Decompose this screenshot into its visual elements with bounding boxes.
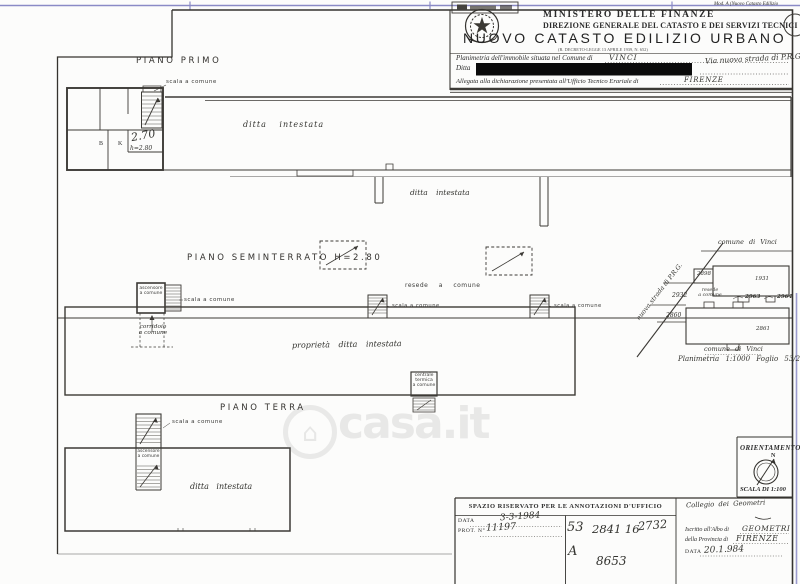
seminterrato-ascensore-label: ascensore a comune — [138, 287, 164, 297]
ufficio-erariale-label: Allegata alla dichiarazione presentata a… — [456, 78, 638, 85]
parcel-2860: 2860 — [666, 313, 681, 319]
height-note-small: h=2.80 — [130, 146, 152, 152]
map-comune-bottom: comune di Vinci — [704, 346, 763, 353]
ufficio-erariale-value: FIRENZE — [684, 77, 724, 85]
room-k-label: K — [118, 141, 122, 147]
parcel-2932: 2932 — [672, 293, 687, 299]
terra-scala-label: scala a comune — [172, 419, 223, 425]
location-map-drawing — [637, 243, 792, 357]
office-code-1: 53 — [567, 521, 584, 535]
room-b-label: B — [99, 141, 103, 147]
albo-label: Iscritto all'Albo di — [685, 527, 729, 533]
albo-value: GEOMETRI — [742, 525, 790, 533]
ministry-name: MINISTERO DELLE FINANZE — [543, 10, 715, 20]
seminterrato-scala-label-2: scala a comune — [392, 304, 440, 310]
scanned-cadastral-sheet: ⌂ casa.it Mod. A (Nuovo Catasto Edilizio… — [0, 0, 800, 584]
albo-data-label: DATA — [685, 550, 702, 556]
parcel-2861: 2861 — [756, 327, 770, 333]
comune-field-value: VINCI — [609, 54, 638, 62]
seminterrato-scala-label-3: scala a comune — [554, 304, 602, 310]
prot-field-label: PROT. N° — [458, 529, 485, 535]
map-resede-label: resede a comune — [696, 288, 724, 298]
parcel-1931: 1931 — [755, 277, 769, 283]
parcel-2964: 2964 — [777, 295, 792, 301]
piano-primo-drawing — [67, 85, 791, 226]
piano-terra-title: PIANO TERRA — [220, 404, 306, 413]
scale-label: SCALA DI 1:100 — [740, 486, 786, 493]
strip-owner-note-2: ditta intestata — [410, 189, 470, 197]
annotations-title: SPAZIO RISERVATO PER LE ANNOTAZIONI D'UF… — [455, 503, 676, 510]
office-code-3: 2732 — [638, 518, 668, 533]
orientation-title: ORIENTAMENTO — [740, 445, 800, 453]
seminterrato-title: PIANO SEMINTERRATO H=2.80 — [187, 254, 382, 263]
piano-primo-scala-label: scala a comune — [166, 79, 217, 85]
direzione-name: DIREZIONE GENERALE DEL CATASTO E DEI SER… — [543, 22, 800, 31]
strip-owner-note: ditta intestata — [243, 121, 324, 130]
redaction-bar — [476, 63, 692, 76]
ditta-field-label: Ditta — [456, 65, 470, 73]
prot-field-value: 11197 — [486, 522, 517, 534]
north-label: N — [771, 453, 775, 459]
parcel-2963: 2963 — [745, 295, 760, 301]
map-comune-top: comune di Vinci — [718, 239, 777, 246]
data-field-label: DATA — [458, 519, 475, 525]
map-caption: Planimetria 1:1000 Foglio 53/2 — [678, 356, 800, 364]
comune-field-label: Planimetria dell'immobile situata nel Co… — [456, 55, 593, 63]
albo-data-value: 20.1.984 — [704, 545, 744, 556]
centrale-termica-label: centrale termica a comune — [412, 374, 436, 389]
terra-ascensore-label: ascensore a comune — [137, 450, 160, 460]
mod-label: Mod. A (Nuovo Catasto Edilizio — [714, 2, 778, 7]
parcel-2898: 2898 — [697, 272, 711, 278]
catasto-title: NUOVO CATASTO EDILIZIO URBANO — [463, 31, 786, 46]
provincia-label: della Provincia di — [685, 537, 728, 543]
watermark-text: casa.it — [338, 400, 488, 448]
resede-label: resede a comune — [405, 283, 480, 289]
terra-owner-note: ditta intestata — [190, 483, 252, 492]
office-code-4: A — [568, 545, 577, 559]
piano-primo-title: PIANO PRIMO — [136, 57, 221, 66]
office-code-5: 8653 — [596, 555, 627, 568]
seminterrato-scala-label: scala a comune — [184, 297, 235, 303]
provincia-value: FIRENZE — [736, 535, 778, 544]
corridoio-label: corridoio a comune — [136, 324, 170, 337]
piano-terra-drawing — [65, 414, 290, 531]
office-code-2: 2841 16 — [592, 523, 640, 535]
